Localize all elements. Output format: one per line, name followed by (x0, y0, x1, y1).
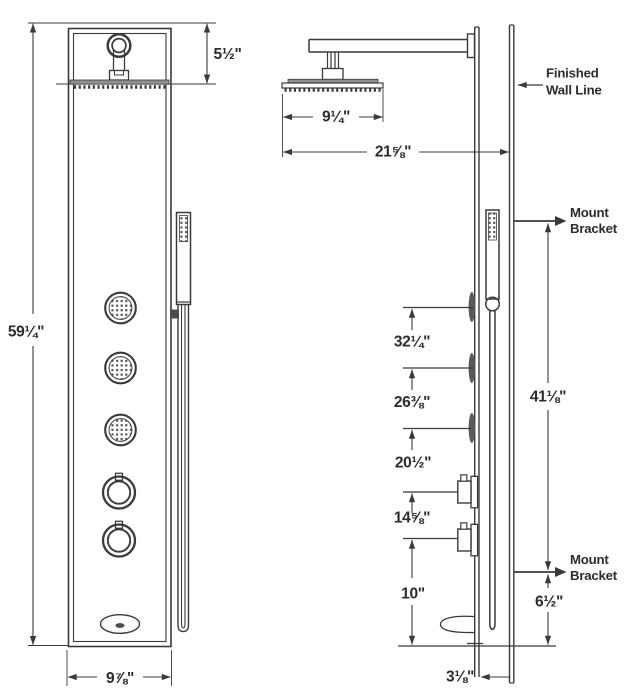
showerhead-offset-label: 5½" (214, 46, 242, 63)
finished-wall-callout: Finished Wall Line (518, 66, 602, 98)
dimension-knob2-height: 10" (401, 539, 458, 645)
body-jet-3 (105, 415, 136, 446)
rain-showerhead-front (56, 80, 216, 87)
dimension-lower-bracket-span: 6½" (535, 575, 563, 645)
upper-bracket-span-label: 41⅛" (530, 389, 566, 406)
side-view: 9¼" 21⅝" Finished Wall Line (282, 25, 618, 686)
knob2-height-label: 10" (401, 586, 425, 603)
dimension-jet2-height: 26⅜" (394, 368, 474, 411)
mount-bracket-callout-lower: Mount Bracket (514, 552, 618, 583)
mount-bracket-arrow-lower (555, 567, 567, 577)
hand-shower-front (170, 213, 191, 632)
mount-bracket-arrow-upper (555, 216, 567, 226)
body-jet-1 (105, 293, 136, 324)
panel-depth-label: 3⅛" (446, 669, 474, 686)
jet2-height-label: 26⅜" (394, 394, 430, 411)
panel-body-front (69, 29, 172, 647)
mount-bracket-lower-line2: Bracket (570, 568, 618, 583)
mount-bracket-callout-upper: Mount Bracket (514, 205, 618, 236)
rain-showerhead-side (282, 79, 383, 90)
tub-spout-side (441, 616, 475, 632)
finished-wall-label-line2: Wall Line (546, 83, 602, 98)
mount-bracket-upper-line1: Mount (570, 205, 609, 220)
hose-holder (170, 310, 179, 319)
showerhead-width-label: 9¼" (322, 109, 350, 126)
lower-bracket-span-label: 6½" (535, 594, 563, 611)
finished-wall-line (510, 25, 514, 683)
showerhead-reach-label: 21⅝" (375, 144, 411, 161)
finished-wall-label-line1: Finished (546, 66, 599, 81)
dimension-upper-bracket-span: 41⅛" (530, 224, 566, 571)
dimension-panel-width: 9⅞" (67, 650, 172, 687)
jet1-height-label: 32¼" (394, 334, 430, 351)
dimension-showerhead-offset: 5½" (207, 24, 242, 83)
body-jet-2 (105, 353, 136, 384)
dimension-jet3-height: 20½" (395, 429, 471, 472)
control-knob-2 (103, 521, 135, 556)
mount-bracket-upper-line2: Bracket (570, 221, 618, 236)
panel-width-label: 9⅞" (106, 670, 134, 687)
shower-arm-front (108, 34, 131, 80)
overall-height-label: 59¼" (8, 324, 44, 341)
dimension-panel-depth: 3⅛" (446, 669, 510, 686)
control-knob-2-side (458, 523, 478, 556)
shower-panel-dimension-diagram: 59¼" 5½" 9⅞" (0, 0, 643, 700)
tub-spout-front (101, 615, 140, 634)
jet3-height-label: 20½" (395, 455, 431, 472)
hand-shower-side (486, 210, 500, 629)
control-knob-1-side (458, 475, 478, 508)
shower-arm-side (309, 34, 475, 80)
mount-bracket-lower-line1: Mount (570, 552, 609, 567)
control-knob-1 (103, 473, 135, 508)
panel-body-side (467, 27, 483, 677)
front-view: 59¼" 5½" 9⅞" (8, 23, 242, 687)
dimension-knob1-height: 14⅝" (394, 492, 458, 527)
knob1-height-label: 14⅝" (394, 510, 430, 527)
dimension-jet1-height: 32¼" (394, 308, 474, 351)
dimension-showerhead-width: 9¼" (283, 104, 382, 126)
diagram-drawing: 59¼" 5½" 9⅞" (0, 0, 643, 700)
